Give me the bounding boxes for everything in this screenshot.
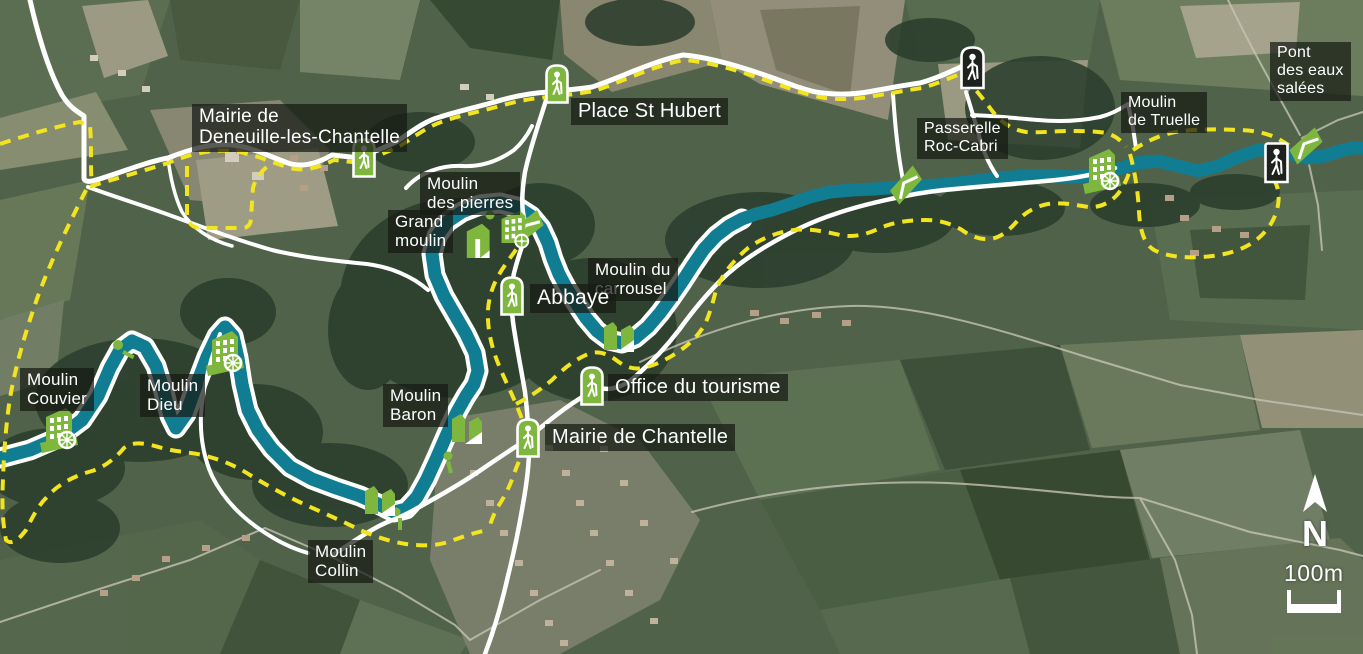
scale-bar: 100m (1284, 560, 1344, 613)
label-pont-des-eaux-salees: Pont des eaux salées (1270, 42, 1351, 101)
hiker-icon-pont-des-eaux-salees (1266, 144, 1288, 183)
label-moulin-des-pierres: Moulin des pierres (420, 172, 520, 215)
label-line: Roc-Cabri (924, 138, 1001, 156)
hiker-icon-place-st-hubert (547, 66, 568, 103)
hiker-icon-office-du-tourisme (582, 368, 603, 405)
label-line: Moulin (427, 174, 513, 193)
scale-label: 100m (1284, 560, 1344, 587)
label-mairie-deneuille: Mairie de Deneuille-les-Chantelle (192, 104, 407, 152)
label-line: Pont (1277, 44, 1344, 62)
label-line: Moulin (147, 376, 198, 395)
label-moulin-couvier: Moulin Couvier (20, 368, 94, 411)
scale-bar-graphic (1287, 590, 1341, 613)
label-line: moulin (395, 231, 446, 250)
label-moulin-baron: Moulin Baron (383, 384, 448, 427)
label-moulin-collin: Moulin Collin (308, 540, 373, 583)
label-abbaye: Abbaye (530, 284, 616, 313)
label-line: Baron (390, 405, 441, 424)
north-label: N (1292, 516, 1338, 552)
label-line: Place St Hubert (578, 100, 721, 122)
label-line: Deneuille-les-Chantelle (199, 127, 400, 148)
label-line: Couvier (27, 389, 87, 408)
label-line: salées (1277, 80, 1344, 98)
hiker-icon-abbaye (502, 278, 523, 315)
label-passerelle-roc-cabri: Passerelle Roc-Cabri (917, 118, 1008, 159)
label-line: Dieu (147, 395, 198, 414)
label-line: Collin (315, 561, 366, 580)
label-line: Mairie de (199, 106, 400, 127)
label-line: Moulin (1128, 94, 1200, 112)
label-line: Passerelle (924, 120, 1001, 138)
label-moulin-dieu: Moulin Dieu (140, 374, 205, 417)
label-mairie-de-chantelle: Mairie de Chantelle (545, 424, 735, 451)
hiker-icon-mairie-de-chantelle (518, 420, 539, 457)
label-place-st-hubert: Place St Hubert (571, 98, 728, 125)
hiker-icon-trailhead-north (962, 48, 984, 89)
label-line: Moulin (27, 370, 87, 389)
label-grand-moulin: Grand moulin (388, 210, 453, 253)
label-office-du-tourisme: Office du tourisme (608, 374, 788, 401)
north-arrow-icon (1300, 474, 1330, 514)
label-line: Mairie de Chantelle (552, 426, 728, 448)
label-moulin-de-truelle: Moulin de Truelle (1121, 92, 1207, 133)
label-line: Moulin (390, 386, 441, 405)
label-line: de Truelle (1128, 112, 1200, 130)
compass: N (1292, 474, 1338, 552)
label-line: Moulin du (595, 260, 671, 279)
map-canvas[interactable]: Mairie de Deneuille-les-Chantelle Place … (0, 0, 1363, 654)
label-line: Grand (395, 212, 446, 231)
label-line: Office du tourisme (615, 376, 781, 398)
label-line: Moulin (315, 542, 366, 561)
label-line: Abbaye (537, 286, 609, 310)
label-line: des eaux (1277, 62, 1344, 80)
